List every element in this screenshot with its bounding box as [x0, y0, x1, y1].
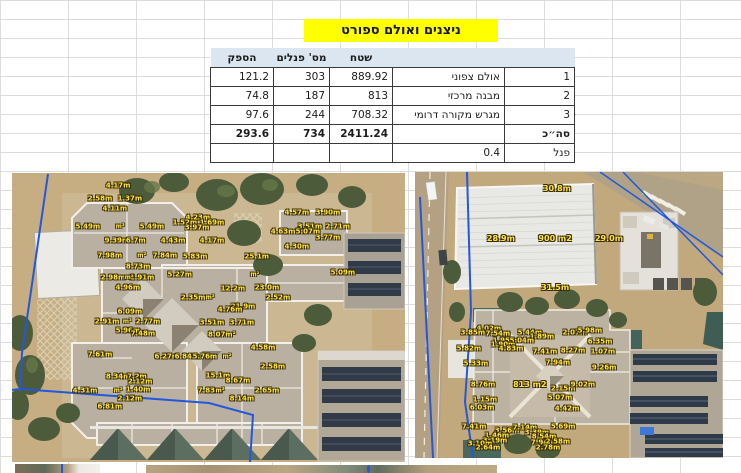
measurement-label: 6.7m	[126, 237, 146, 244]
measurement-label: 8.73m	[126, 263, 151, 270]
header-area[interactable]: שטח	[330, 48, 393, 68]
cell-area[interactable]: 813	[330, 87, 393, 106]
measurement-label: 2.52m	[266, 295, 291, 302]
measurement-label: m²	[116, 224, 125, 230]
measurement-label: m²	[250, 272, 259, 278]
measurement-label: m²	[114, 388, 123, 394]
table-row: 3מגרש מקורה דרומי708.3224497.6	[211, 106, 575, 125]
measurement-label: 4.57m	[285, 209, 310, 216]
cell-area[interactable]: 2411.24	[330, 125, 393, 144]
measurement-label: 4.83m	[499, 346, 524, 353]
measurement-label: 2.71m	[326, 224, 351, 231]
cell-num[interactable]: 1	[505, 68, 575, 87]
cell-panels[interactable]: 734	[274, 125, 330, 144]
measurement-label: 28.9m	[487, 235, 515, 243]
measurement-label: 5.69m	[551, 424, 576, 431]
measurement-label: 7.84m	[153, 252, 178, 259]
measurement-label: 9.26m	[592, 364, 617, 371]
measurement-label: 3.71m	[230, 319, 255, 326]
measurement-label: 8.14m	[230, 395, 255, 402]
measurement-label: 2.12m	[128, 378, 153, 385]
measurement-label: 2.35m	[181, 295, 206, 302]
measurement-label: 1.07m	[591, 348, 616, 355]
measurement-label: 5.83m	[183, 254, 208, 261]
measurement-label: 2.78m	[536, 444, 561, 451]
solar-panels-table: שטח מס' פנלים הספק 1אולם צפוני889.923031…	[210, 48, 575, 163]
measurement-label: 12.2m	[221, 285, 246, 292]
measurement-label: 4.42m	[555, 406, 580, 413]
cell-label[interactable]: מבנה מרכזי	[393, 87, 505, 106]
measurement-label: 813 m2	[513, 381, 546, 389]
partial-image-strip[interactable]	[146, 465, 497, 473]
page-title[interactable]: ניצנים ואולם ספורט	[304, 19, 498, 42]
measurement-label: 8.67m	[226, 378, 251, 385]
measurement-label: 1.37m	[118, 196, 143, 203]
cell-area[interactable]: 889.92	[330, 68, 393, 87]
table-header-row: שטח מס' פנלים הספק	[211, 48, 575, 68]
measurement-label: 4.17m	[200, 237, 225, 244]
cell-panels[interactable]	[274, 144, 330, 163]
cell-label[interactable]: אולם צפוני	[393, 68, 505, 87]
measurement-label: 1.15m	[473, 396, 498, 403]
measurement-label: 4.58m	[251, 345, 276, 352]
measurement-label: m²	[215, 388, 224, 394]
measurement-label: 3.51m	[200, 319, 225, 326]
cell-label[interactable]: 0.4	[393, 144, 505, 163]
measurement-label: 5.49m	[140, 224, 165, 231]
right-measurements: 30.8m28.9m900 m229.0m31.5m4.02m3.85m7.54…	[415, 172, 723, 458]
table-row: 1אולם צפוני889.92303121.2	[211, 68, 575, 87]
cell-power[interactable]: 74.8	[211, 87, 274, 106]
cell-num[interactable]: 3	[505, 106, 575, 125]
measurement-label: 23.0m	[255, 285, 280, 292]
header-blank[interactable]	[505, 48, 575, 68]
measurement-label: 2.77m	[136, 319, 161, 326]
measurement-label: 6.09m	[118, 309, 143, 316]
cell-panels[interactable]: 187	[274, 87, 330, 106]
table-row: סה״כ2411.24734293.6	[211, 125, 575, 144]
measurement-label: 900 m2	[538, 235, 571, 243]
spreadsheet: ניצנים ואולם ספורט שטח מס' פנלים הספק 1א…	[0, 0, 741, 473]
measurement-label: 4.76m	[218, 306, 243, 313]
cell-panels[interactable]: 303	[274, 68, 330, 87]
measurement-label: 7.61m	[88, 352, 113, 359]
measurement-label: 2.58m	[88, 196, 113, 203]
aerial-photo-school-complex[interactable]: 4.17m2.58m1.37m4.11m5.49m5.49m9.39m6.7m4…	[12, 173, 405, 462]
cell-power[interactable]: 97.6	[211, 106, 274, 125]
measurement-label: 5.33m	[464, 360, 489, 367]
measurement-label: 4.31m	[73, 387, 98, 394]
measurement-label: 8.76m	[471, 382, 496, 389]
measurement-label: 5.09m	[331, 269, 356, 276]
measurement-label: 7.48m	[131, 330, 156, 337]
measurement-label: 8.27m	[561, 348, 586, 355]
measurement-label: 6.35m	[588, 338, 613, 345]
measurement-label: 4.30m	[285, 243, 310, 250]
header-blank[interactable]	[393, 48, 505, 68]
measurement-label: 2.12m	[118, 395, 143, 402]
measurement-label: m²	[123, 319, 132, 325]
cell-area[interactable]: 708.32	[330, 106, 393, 125]
measurement-label: 2.58m	[261, 363, 286, 370]
measurement-label: 1.40m	[126, 387, 151, 394]
measurement-label: m²	[206, 295, 215, 301]
measurement-label: 25.1m	[245, 254, 270, 261]
cell-num[interactable]: סה״כ	[505, 125, 575, 144]
measurement-label: 5.49m	[76, 224, 101, 231]
measurement-label: 7.41m	[533, 348, 558, 355]
measurement-label: 5.27m	[168, 272, 193, 279]
measurement-label: m²	[125, 275, 134, 281]
measurement-label: 2.65m	[255, 387, 280, 394]
measurement-label: 9.02m	[571, 382, 596, 389]
measurement-label: 29.0m	[595, 235, 623, 243]
measurement-label: 7.98m	[98, 252, 123, 259]
partial-image-strip[interactable]	[15, 464, 100, 473]
measurement-label: 5.82m	[457, 346, 482, 353]
measurement-label: 4.11m	[103, 206, 128, 213]
header-power[interactable]: הספק	[211, 48, 274, 68]
measurement-label: 4.63m	[271, 228, 296, 235]
cell-num[interactable]: פנל	[505, 144, 575, 163]
table-body: 1אולם צפוני889.92303121.22מבנה מרכזי8131…	[211, 68, 575, 163]
cell-power[interactable]: 121.2	[211, 68, 274, 87]
measurement-label: m²	[137, 253, 146, 259]
cell-label[interactable]	[393, 125, 505, 144]
measurement-label: 6.03m	[470, 404, 495, 411]
table-row: 2מבנה מרכזי81318774.8	[211, 87, 575, 106]
measurement-label: 3.85m	[461, 330, 486, 337]
cell-label[interactable]: מגרש מקורה דרומי	[393, 106, 505, 125]
header-panels[interactable]: מס' פנלים	[274, 48, 330, 68]
measurement-label: 5.07m	[548, 394, 573, 401]
aerial-photo-sports-hall[interactable]: 30.8m28.9m900 m229.0m31.5m4.02m3.85m7.54…	[415, 172, 723, 458]
measurement-label: 4.17m	[106, 183, 131, 190]
cell-power[interactable]	[211, 144, 274, 163]
measurement-label: 5.76m	[193, 354, 218, 361]
measurement-label: 5.98m	[578, 328, 603, 335]
measurement-label: 31.5m	[541, 284, 569, 292]
measurement-label: 7.41m	[462, 424, 487, 431]
table-row: פנל0.4	[211, 144, 575, 163]
measurement-label: 7.94m	[546, 360, 571, 367]
measurement-label: 4.96m	[116, 285, 141, 292]
measurement-label: 2.98m	[101, 274, 126, 281]
measurement-label: 8.07m²	[208, 332, 236, 339]
left-measurements: 4.17m2.58m1.37m4.11m5.49m5.49m9.39m6.7m4…	[12, 173, 405, 462]
measurement-label: 2.91m	[95, 319, 120, 326]
measurement-label: 3.77m	[316, 235, 341, 242]
measurement-label: 4.43m	[161, 237, 186, 244]
measurement-label: 3.97m	[185, 224, 210, 231]
cell-panels[interactable]: 244	[274, 106, 330, 125]
measurement-label: 2.64m	[476, 444, 501, 451]
cell-power[interactable]: 293.6	[211, 125, 274, 144]
cell-area[interactable]	[330, 144, 393, 163]
cell-num[interactable]: 2	[505, 87, 575, 106]
measurement-label: 30.8m	[543, 185, 571, 193]
measurement-label: 6.81m	[98, 404, 123, 411]
measurement-label: 3.90m	[316, 209, 341, 216]
measurement-label: m²	[223, 354, 232, 360]
